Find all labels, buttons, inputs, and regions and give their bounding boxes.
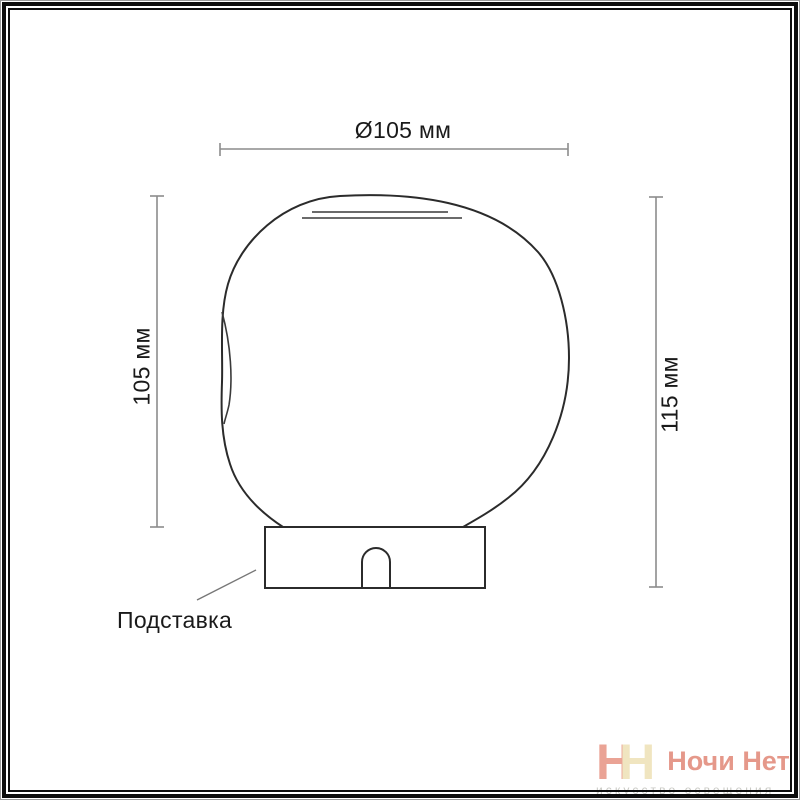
brand-tagline-text: искусство освещения bbox=[596, 783, 796, 797]
brand-watermark: НН Ночи Нет искусство освещения bbox=[596, 740, 796, 797]
watermark-logo-row: НН Ночи Нет bbox=[596, 740, 796, 784]
base-leader-line bbox=[197, 570, 256, 600]
total-height-dimension-label: 115 мм bbox=[657, 355, 684, 435]
diameter-dimension-label: Ø105 мм bbox=[303, 117, 503, 144]
lamp-shade-crease-line bbox=[222, 312, 231, 424]
brand-monogram-icon: НН bbox=[596, 740, 655, 784]
brand-name-text: Ночи Нет bbox=[667, 746, 789, 777]
dimension-drawing-page: Ø105 мм 105 мм 115 мм Подставка НН Ночи … bbox=[0, 0, 800, 800]
base-rect bbox=[265, 527, 485, 588]
lamp-shade-outline bbox=[222, 195, 569, 527]
shade-height-dimension-label: 105 мм bbox=[129, 327, 156, 407]
base-part-label: Подставка bbox=[117, 607, 232, 634]
monogram-letter-right: Н bbox=[619, 734, 655, 790]
